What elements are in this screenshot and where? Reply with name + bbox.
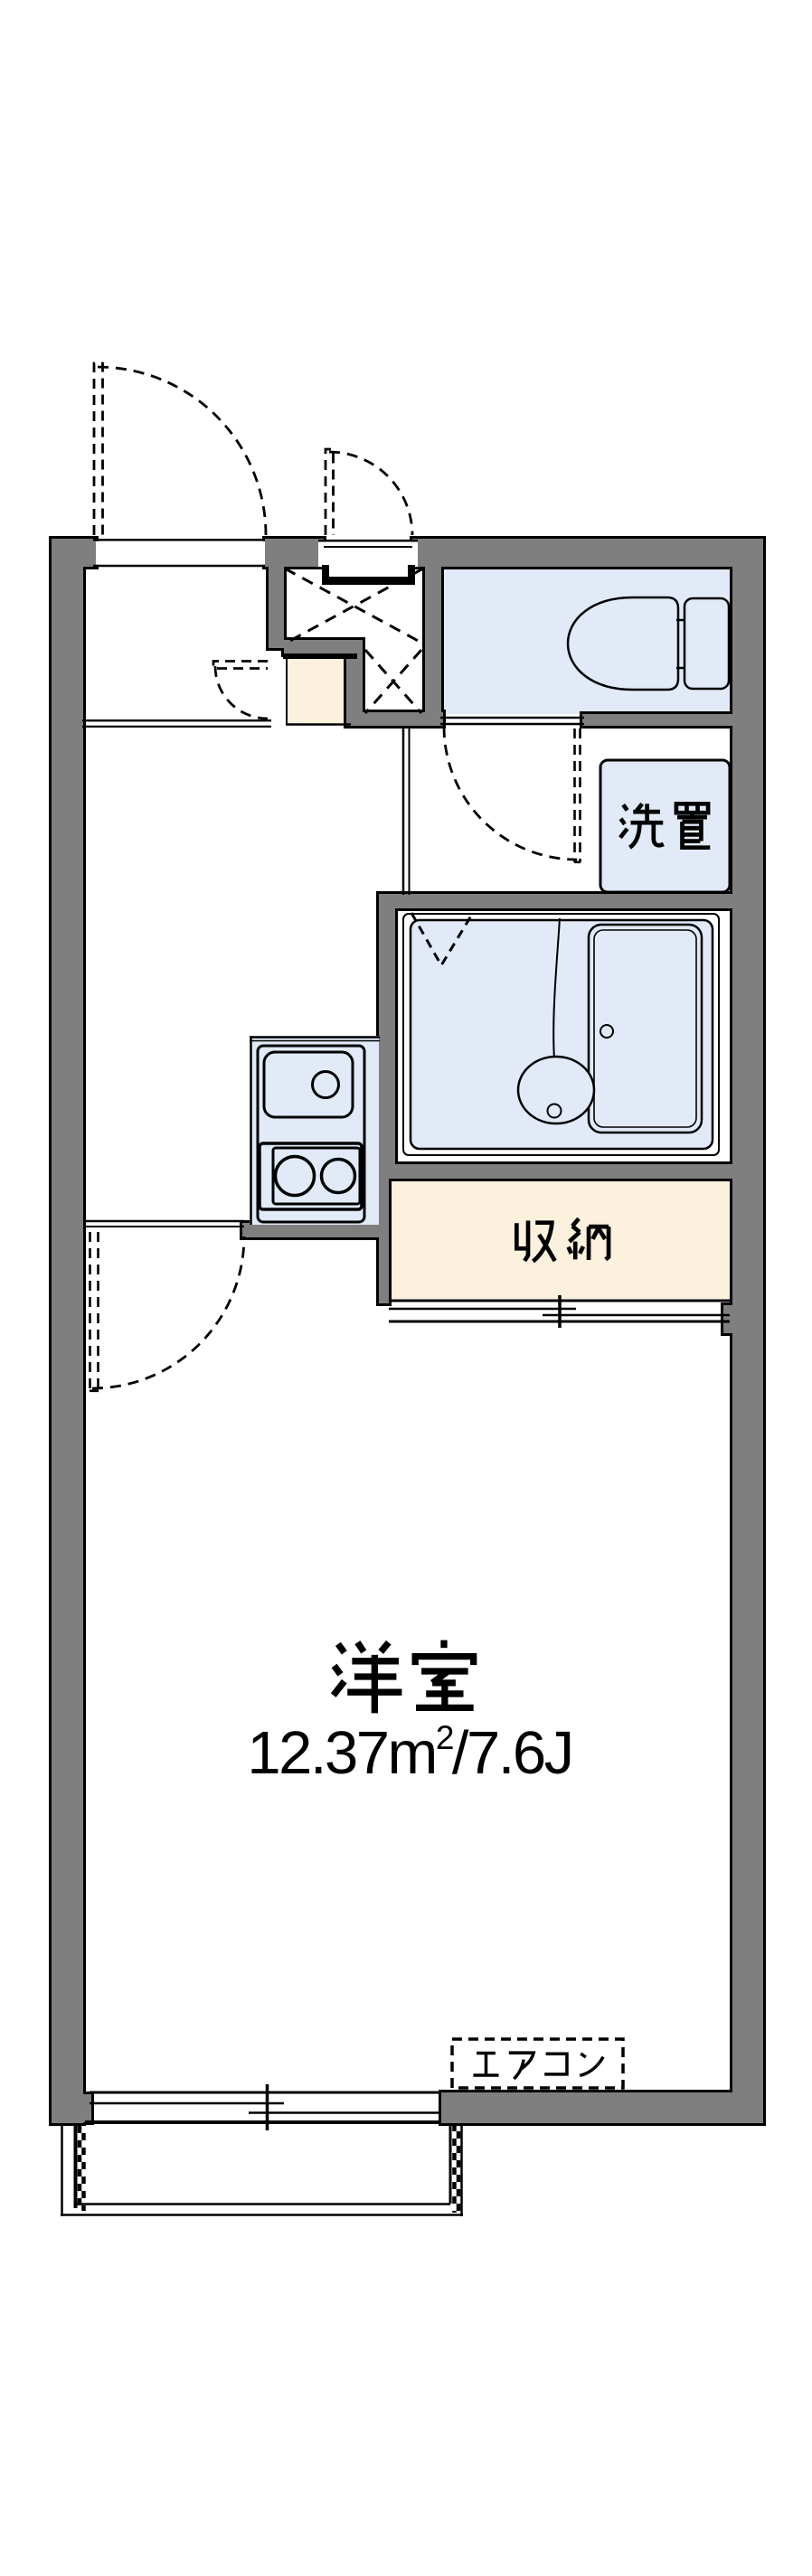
- svg-text:12.37m2/7.6J: 12.37m2/7.6J: [247, 1719, 571, 1787]
